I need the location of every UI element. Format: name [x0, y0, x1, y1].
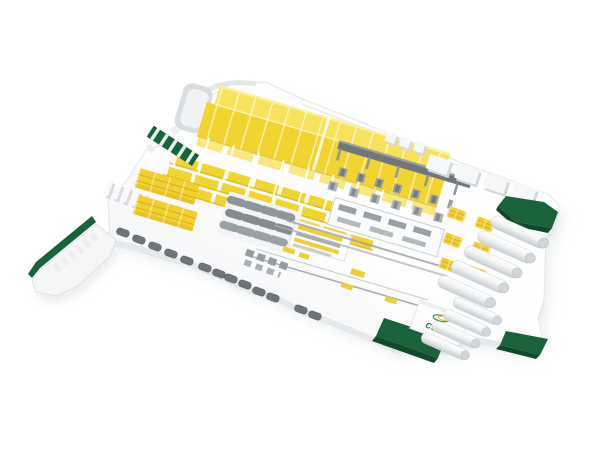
plant-render-canvas: CSRP: [0, 0, 600, 450]
plant-3d-render: CSRP: [0, 0, 600, 450]
left-pier: [28, 216, 116, 296]
